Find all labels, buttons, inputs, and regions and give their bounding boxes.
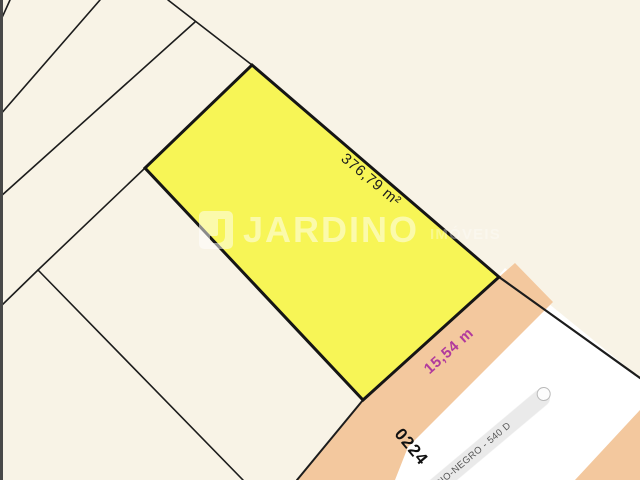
map-canvas xyxy=(0,0,640,480)
lot-map-viewport: 376,79 m² JARDINO IMÓVEIS 15,54 m 0224 R… xyxy=(0,0,640,480)
